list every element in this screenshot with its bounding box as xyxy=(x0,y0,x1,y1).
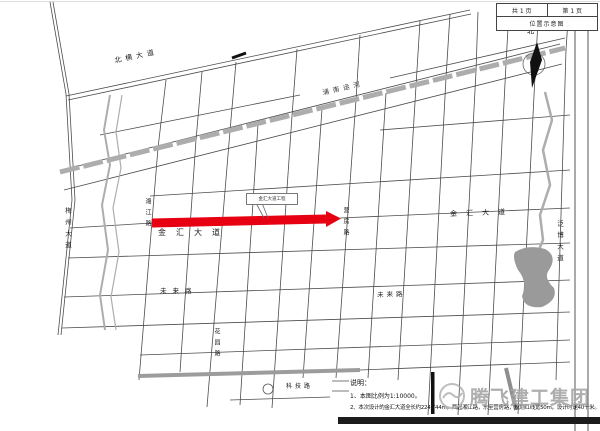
vroad-9-upper xyxy=(416,21,420,86)
row-road-2 xyxy=(68,243,570,258)
row-road-1 xyxy=(150,170,570,196)
vroad-6 xyxy=(303,109,322,378)
label-keji-road: 科技路 xyxy=(286,384,313,390)
drawing-title: 位置示意图 xyxy=(497,17,597,29)
label-future-road-east: 未来路 xyxy=(377,291,406,298)
vroad-2 xyxy=(180,140,196,372)
label-future-road-west: 未来路 xyxy=(160,288,198,295)
vroad-9 xyxy=(398,86,416,380)
watermark-text: 腾飞建工集团 xyxy=(470,383,590,410)
title-block: 共 1 页 第 1 页 位置示意图 xyxy=(496,3,598,31)
xiangjiang-road-upper xyxy=(158,80,166,148)
vroad-10-upper xyxy=(446,14,450,78)
row-road-3 xyxy=(62,312,570,328)
pond xyxy=(514,247,555,307)
roundabout-circle xyxy=(263,384,273,394)
vroad-13 xyxy=(518,56,536,414)
vroad-12 xyxy=(488,64,506,415)
page-number-cell: 第 1 页 xyxy=(547,4,598,16)
jinhui-avenue-west-stub xyxy=(70,223,152,228)
north-avenue-line-1 xyxy=(66,10,470,96)
vroad-5 xyxy=(272,116,292,408)
west-stream xyxy=(100,95,110,330)
vroad-4 xyxy=(240,124,258,405)
page-total-cell: 共 1 页 xyxy=(497,4,547,16)
huayuan-road-upper xyxy=(230,62,236,131)
label-huayuan-road: 花园路 xyxy=(213,328,219,361)
project-red-segment xyxy=(152,219,326,223)
vroad-2-upper xyxy=(196,72,202,140)
company-logo-icon xyxy=(438,382,466,410)
gray-road-band xyxy=(138,370,360,376)
label-xiangjiang-road: 湘江路 xyxy=(144,198,150,231)
project-callout-box: 金汇大道工程 xyxy=(246,193,298,205)
row-road-6 xyxy=(230,397,330,400)
row-road-5 xyxy=(360,362,570,370)
upper-block-divider xyxy=(100,95,300,135)
vroad-11-upper xyxy=(476,12,478,71)
xiangjiang-road-line xyxy=(139,148,158,380)
huayuan-road-line xyxy=(207,131,230,407)
label-meizhou-avenue: 梅州大道 xyxy=(64,207,71,253)
drawing-sheet: 北横大道 浦南运河 金汇大道 金汇大道 未来路 未来路 梅州大道 湘江路 营房路… xyxy=(0,0,600,431)
vroad-5-upper xyxy=(292,49,297,116)
title-block-pages-row: 共 1 页 第 1 页 xyxy=(497,4,597,17)
vroad-11 xyxy=(458,71,476,415)
vroad-12-upper xyxy=(506,28,508,64)
label-jinhui-avenue: 金汇大道 xyxy=(158,229,230,237)
project-callout-text: 金汇大道工程 xyxy=(259,196,286,202)
bottom-frame-bar xyxy=(338,417,600,424)
fanbo-avenue-line xyxy=(556,50,566,380)
row-road-4 xyxy=(140,340,570,355)
punan-canal-band xyxy=(60,48,565,172)
label-yingfang-road: 营房路 xyxy=(342,207,348,240)
yingfang-road-upper xyxy=(356,35,360,100)
label-fanbo-avenue: 泛博大道 xyxy=(556,220,563,266)
water-features xyxy=(60,48,565,330)
bridge-tick xyxy=(232,53,246,58)
row-road-1b xyxy=(380,115,570,130)
vroad-8 xyxy=(368,93,386,378)
red-arrowhead xyxy=(326,211,341,227)
